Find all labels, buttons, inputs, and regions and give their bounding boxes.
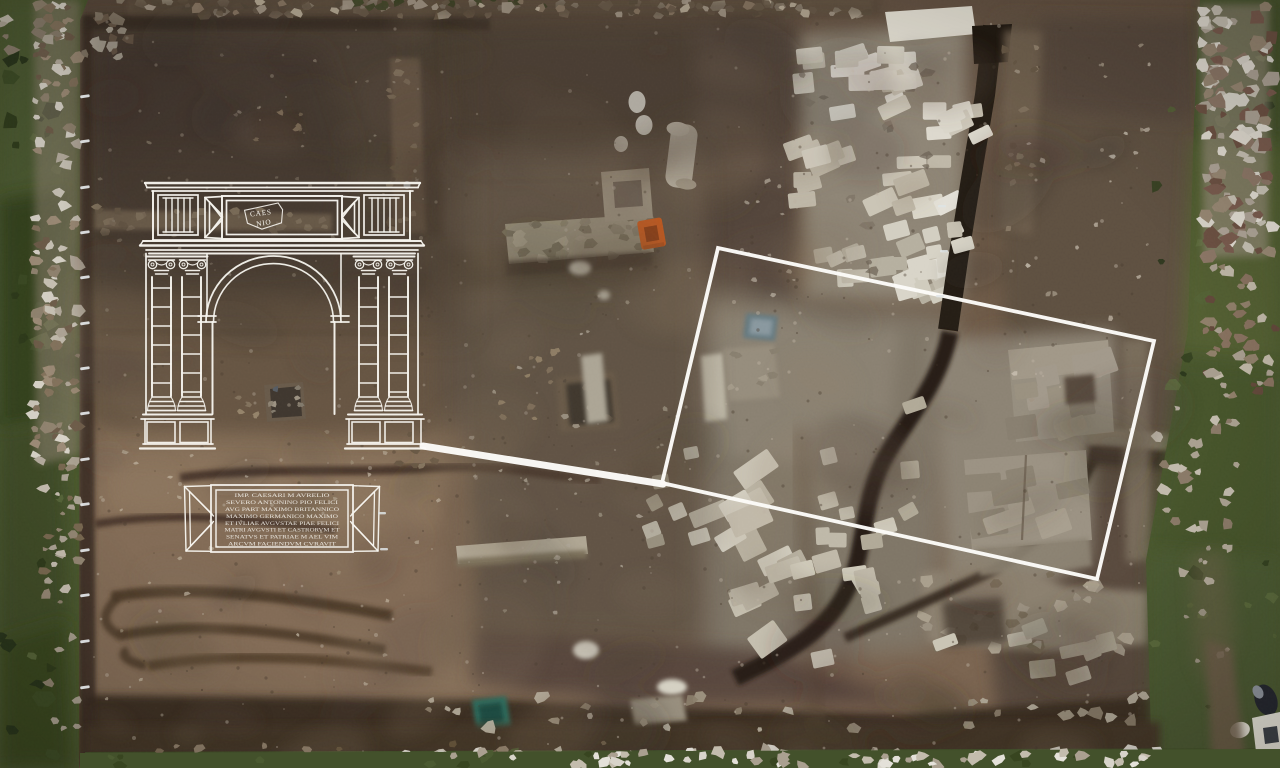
svg-text:SEVERO ANTONINO PIO FELICI: SEVERO ANTONINO PIO FELICI [226, 500, 338, 506]
svg-text:AVG PART MAXIMO BRITANNICO: AVG PART MAXIMO BRITANNICO [225, 507, 339, 513]
svg-text:MATRI AVGVSTI ET CASTRORVM ET: MATRI AVGVSTI ET CASTRORVM ET [225, 528, 341, 534]
svg-text:SENATVS ET PATRIAE M AEL: SENATVS ET PATRIAE M AEL VIM [226, 535, 338, 541]
svg-text:ARCVM FACIENDVM CVRAVIT: ARCVM FACIENDVM CVRAVIT [228, 542, 337, 548]
svg-text:ET IVLIAE AVGVSTAE PIAE FE: ET IVLIAE AVGVSTAE PIAE FELICI [225, 521, 339, 527]
svg-text:IMP. CAESARI M AVRELIO: IMP. CAESARI M AVRELIO [235, 493, 330, 499]
svg-text:MAXIMO GERMANICO MAXIMO: MAXIMO GERMANICO MAXIMO [226, 514, 338, 520]
